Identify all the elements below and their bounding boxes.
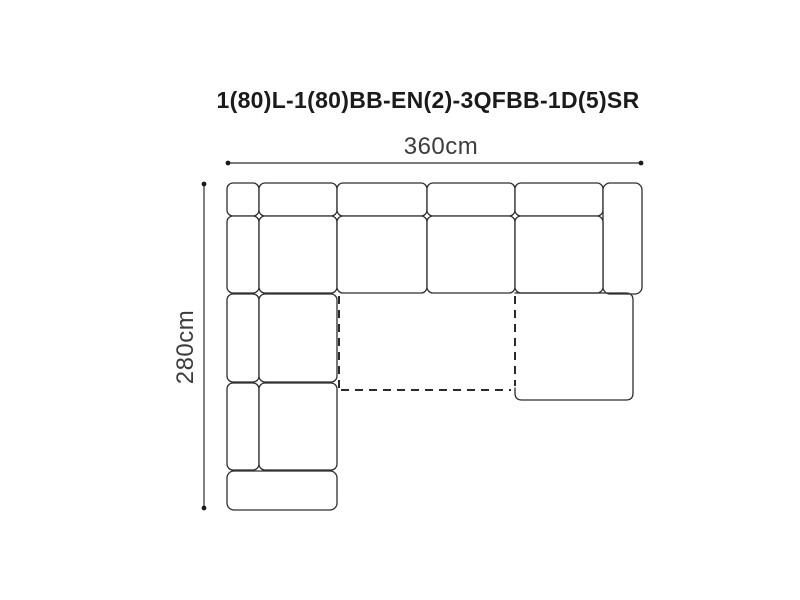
sofa-piece-chaise-extension bbox=[515, 293, 633, 400]
sofa-piece-back-cushion-1 bbox=[259, 183, 337, 216]
horizontal-dimension-dot-left bbox=[226, 161, 231, 166]
vertical-dimension-dot-top bbox=[202, 182, 207, 187]
sofa-piece-left-back-strip-2 bbox=[227, 294, 259, 382]
sofa-piece-left-seat-cushion-2 bbox=[259, 294, 337, 382]
sofa-layout-diagram: 1(80)L-1(80)BB-EN(2)-3QFBB-1D(5)SR 360cm… bbox=[0, 0, 800, 600]
sofa-piece-corner-back-section bbox=[227, 183, 259, 216]
sofa-piece-left-back-strip-1 bbox=[227, 216, 259, 293]
sofa-piece-bottom-armrest bbox=[227, 471, 337, 510]
sofa-piece-seat-cushion-2 bbox=[337, 216, 427, 293]
sofa-piece-back-cushion-2 bbox=[337, 183, 427, 216]
sofa-piece-back-cushion-4 bbox=[515, 183, 603, 216]
sofa-piece-right-armrest bbox=[603, 183, 642, 294]
vertical-dimension-dot-bottom bbox=[202, 506, 207, 511]
sofa-piece-seat-cushion-4 bbox=[515, 216, 603, 293]
sofa-piece-left-seat-cushion-3 bbox=[259, 383, 337, 470]
sofa-piece-corner-seat bbox=[259, 216, 337, 293]
sofa-piece-back-cushion-3 bbox=[427, 183, 515, 216]
sofa-piece-left-back-strip-3 bbox=[227, 383, 259, 470]
sofa-diagram-svg bbox=[0, 0, 800, 600]
sofa-piece-seat-cushion-3 bbox=[427, 216, 515, 293]
horizontal-dimension-dot-right bbox=[639, 161, 644, 166]
